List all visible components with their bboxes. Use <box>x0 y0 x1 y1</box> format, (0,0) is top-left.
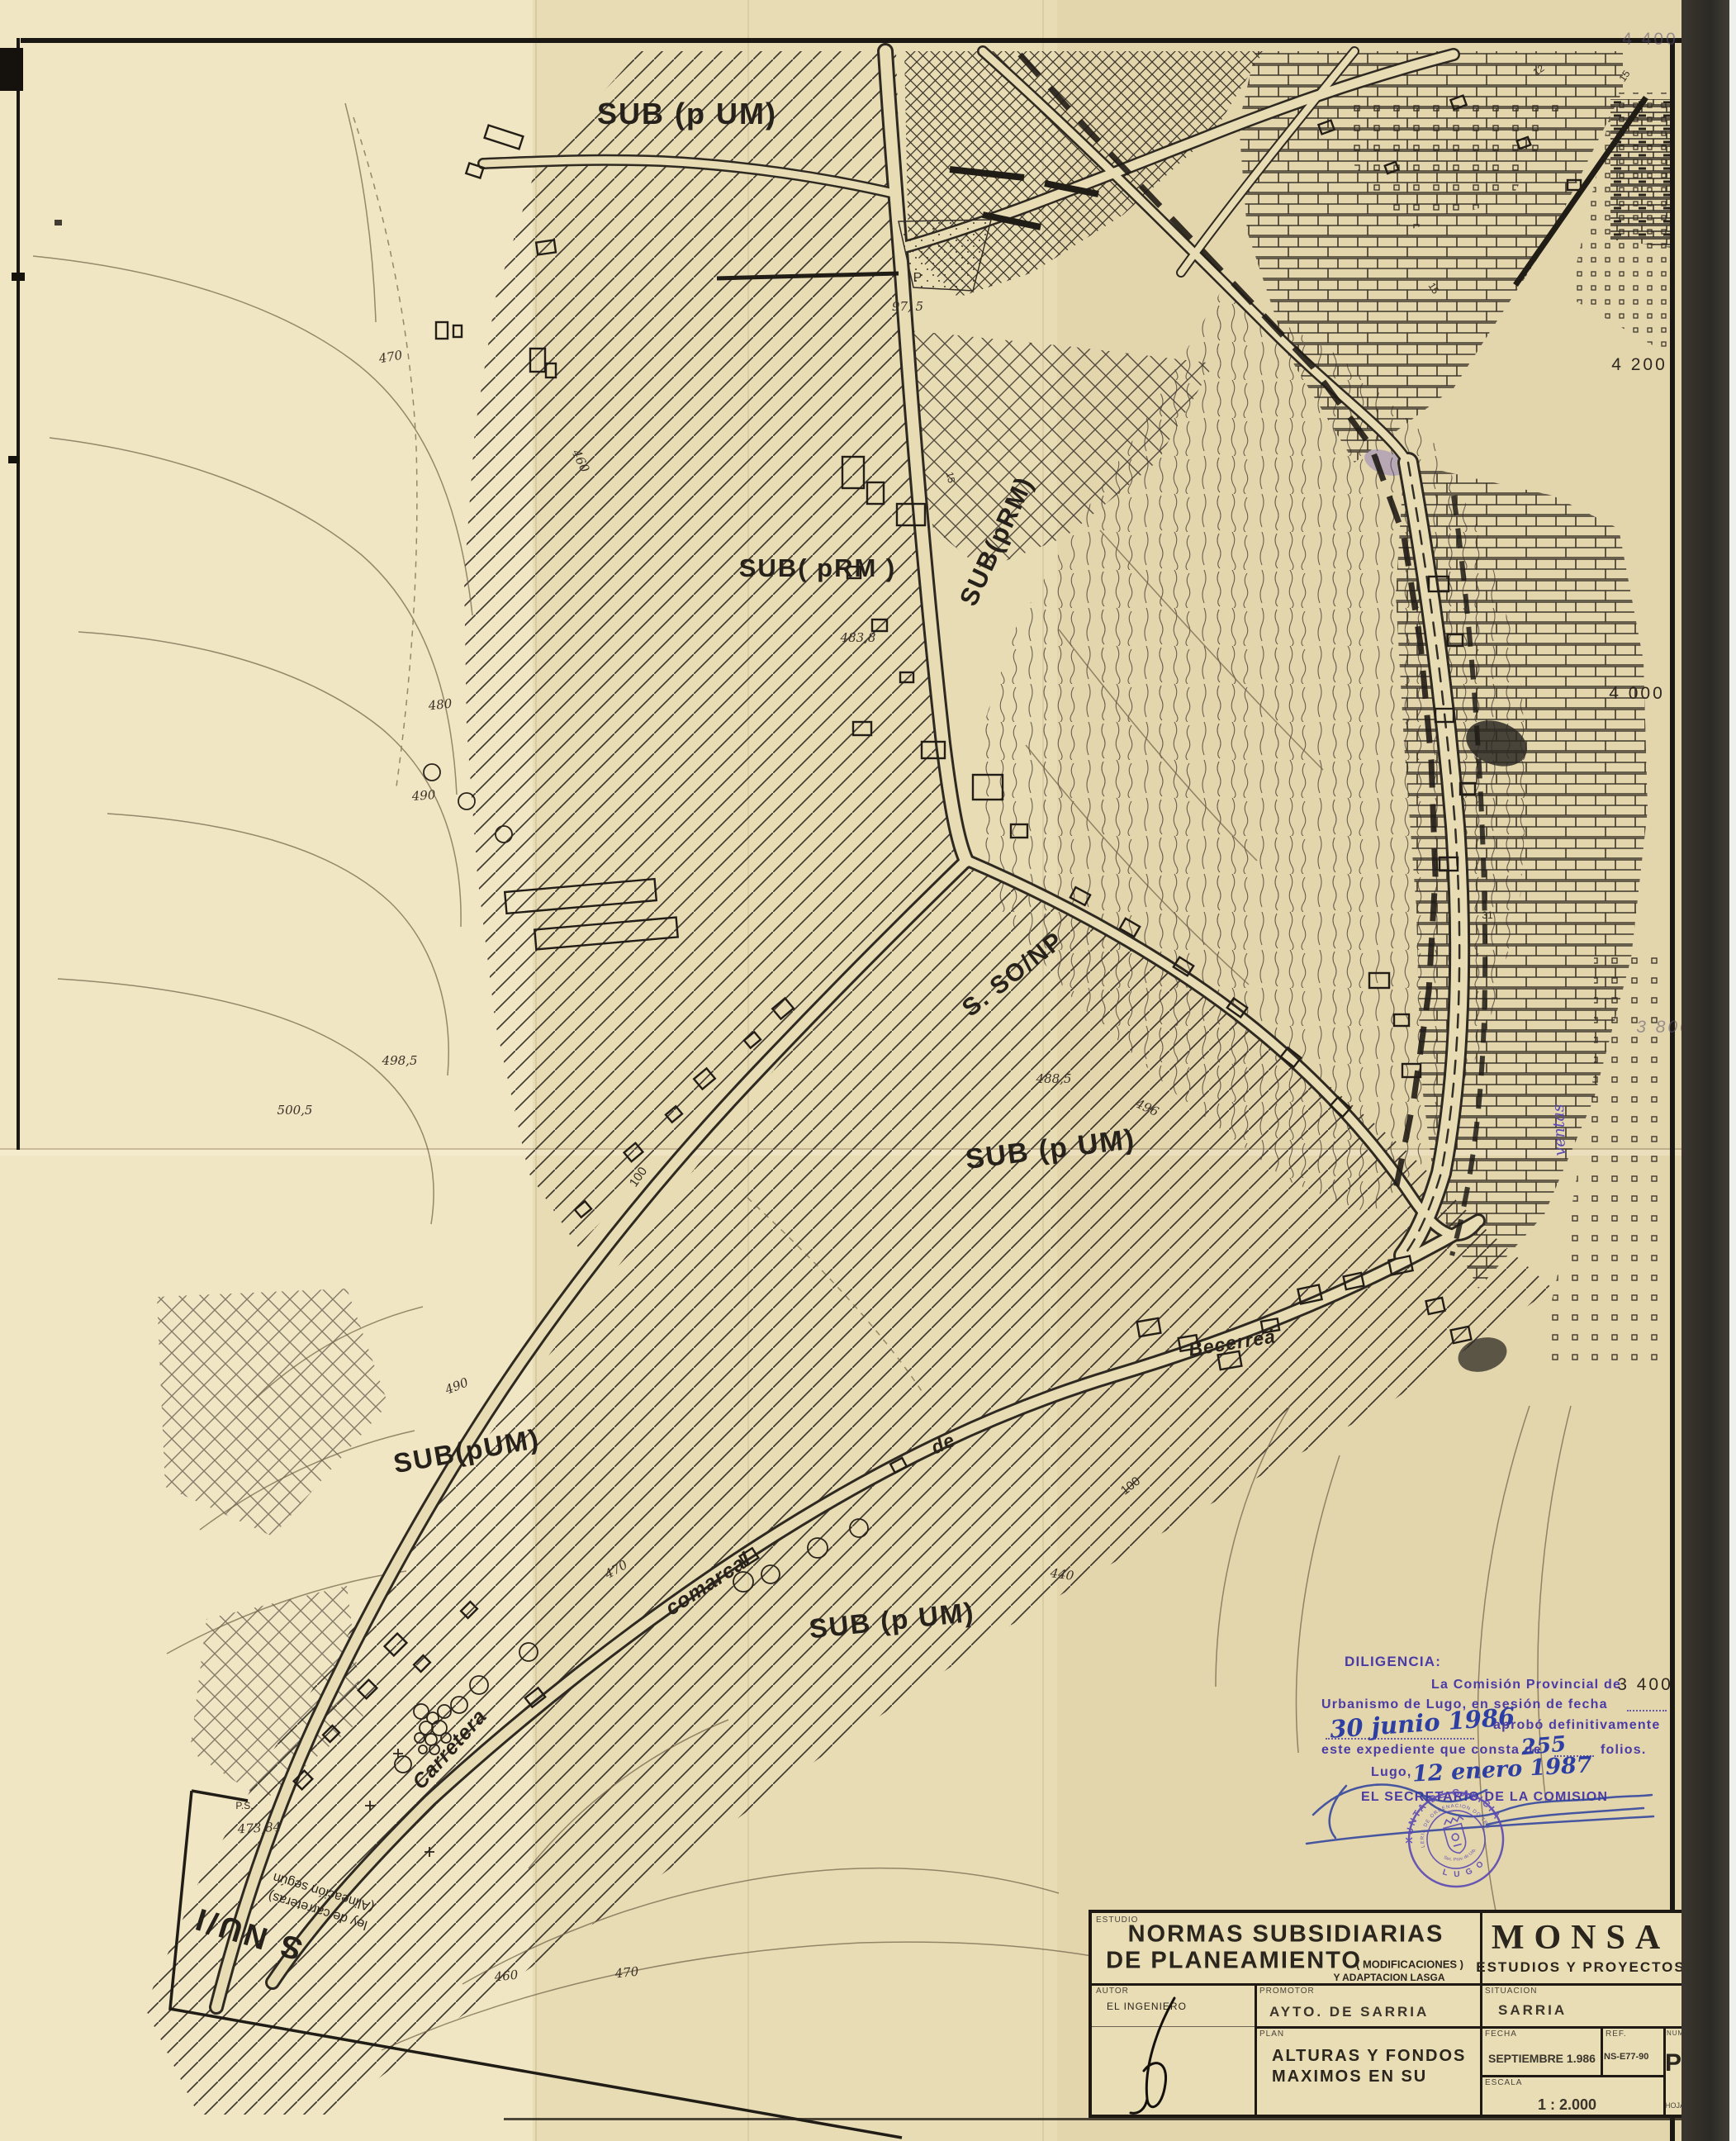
fecha-label: FECHA <box>1485 2029 1517 2039</box>
estudio-paren: ( MODIFICACIONES ) <box>1356 1958 1463 1971</box>
svg-text:Sec. Prov. de Urb.: Sec. Prov. de Urb. <box>1442 1846 1480 1866</box>
dotted-line <box>1627 1709 1667 1711</box>
diligencia-line1: La Comisión Provincial de <box>1431 1678 1621 1692</box>
numero-label: NUMERO <box>1667 2029 1701 2037</box>
estudio-line3: Y ADAPTACION LASGA <box>1333 1972 1444 1983</box>
divider <box>1255 1983 1257 2115</box>
promotor-value: AYTO. DE SARRIA <box>1269 2004 1429 2020</box>
divider <box>1480 2026 1681 2029</box>
diligencia-heading: DILIGENCIA: <box>1345 1654 1441 1670</box>
plan-line2: MAXIMOS EN SU <box>1272 2067 1427 2086</box>
firm-subtitle: ESTUDIOS Y PROYECTOS <box>1476 1959 1686 1976</box>
divider <box>1480 1913 1482 2115</box>
plan-label: PLAN <box>1259 2029 1284 2039</box>
diligencia-block: DILIGENCIA: La Comisión Provincial de Ur… <box>1288 1640 1685 1912</box>
situacion-value: SARRIA <box>1498 2002 1567 2019</box>
diligencia-line4a: este expediente que consta de <box>1321 1743 1542 1758</box>
estudio-line1: NORMAS SUBSIDIARIAS <box>1128 1921 1444 1949</box>
escala-value: 1 : 2.000 <box>1538 2096 1596 2114</box>
scanned-planning-map: SUB (p UM) SUB( pRM ) SUB(pRM) S. SO/NP … <box>0 0 1736 2141</box>
situacion-label: SITUACION <box>1485 1987 1537 1996</box>
divider <box>1601 2026 1603 2077</box>
title-block-grid <box>1092 1983 1681 1986</box>
diligencia-line2: Urbanismo de Lugo, en sesión de fecha <box>1321 1697 1608 1712</box>
engineer-signature <box>1096 1991 1253 2115</box>
promotor-label: PROMOTOR <box>1259 1987 1315 1996</box>
title-block: ESTUDIO NORMAS SUBSIDIARIAS DE PLANEAMIE… <box>1089 1910 1685 2118</box>
seal-center-text: Sec. Prov. de Urb. <box>1442 1846 1480 1866</box>
fecha-value: SEPTIEMBRE 1.986 <box>1488 2052 1596 2065</box>
firm-name: MONSA <box>1492 1918 1670 1958</box>
estudio-label: ESTUDIO <box>1096 1916 1138 1925</box>
divider <box>1663 2026 1666 2115</box>
ref-value: NS-E77-90 <box>1604 2052 1648 2062</box>
diligencia-line3: aprobó definitivamente <box>1493 1718 1660 1733</box>
escala-label: ESCALA <box>1485 2078 1522 2087</box>
estudio-line2: DE PLANEAMIENTO <box>1106 1948 1362 1975</box>
seal-shield <box>1442 1816 1472 1855</box>
dotted-line <box>1554 1754 1594 1757</box>
divider <box>1480 2075 1663 2077</box>
divider <box>1255 2026 1482 2029</box>
ref-label: REF. <box>1606 2029 1627 2039</box>
diligencia-line4b: folios. <box>1601 1743 1647 1758</box>
dotted-line <box>1326 1737 1474 1740</box>
plan-line1: ALTURAS Y FONDOS <box>1272 2047 1466 2066</box>
